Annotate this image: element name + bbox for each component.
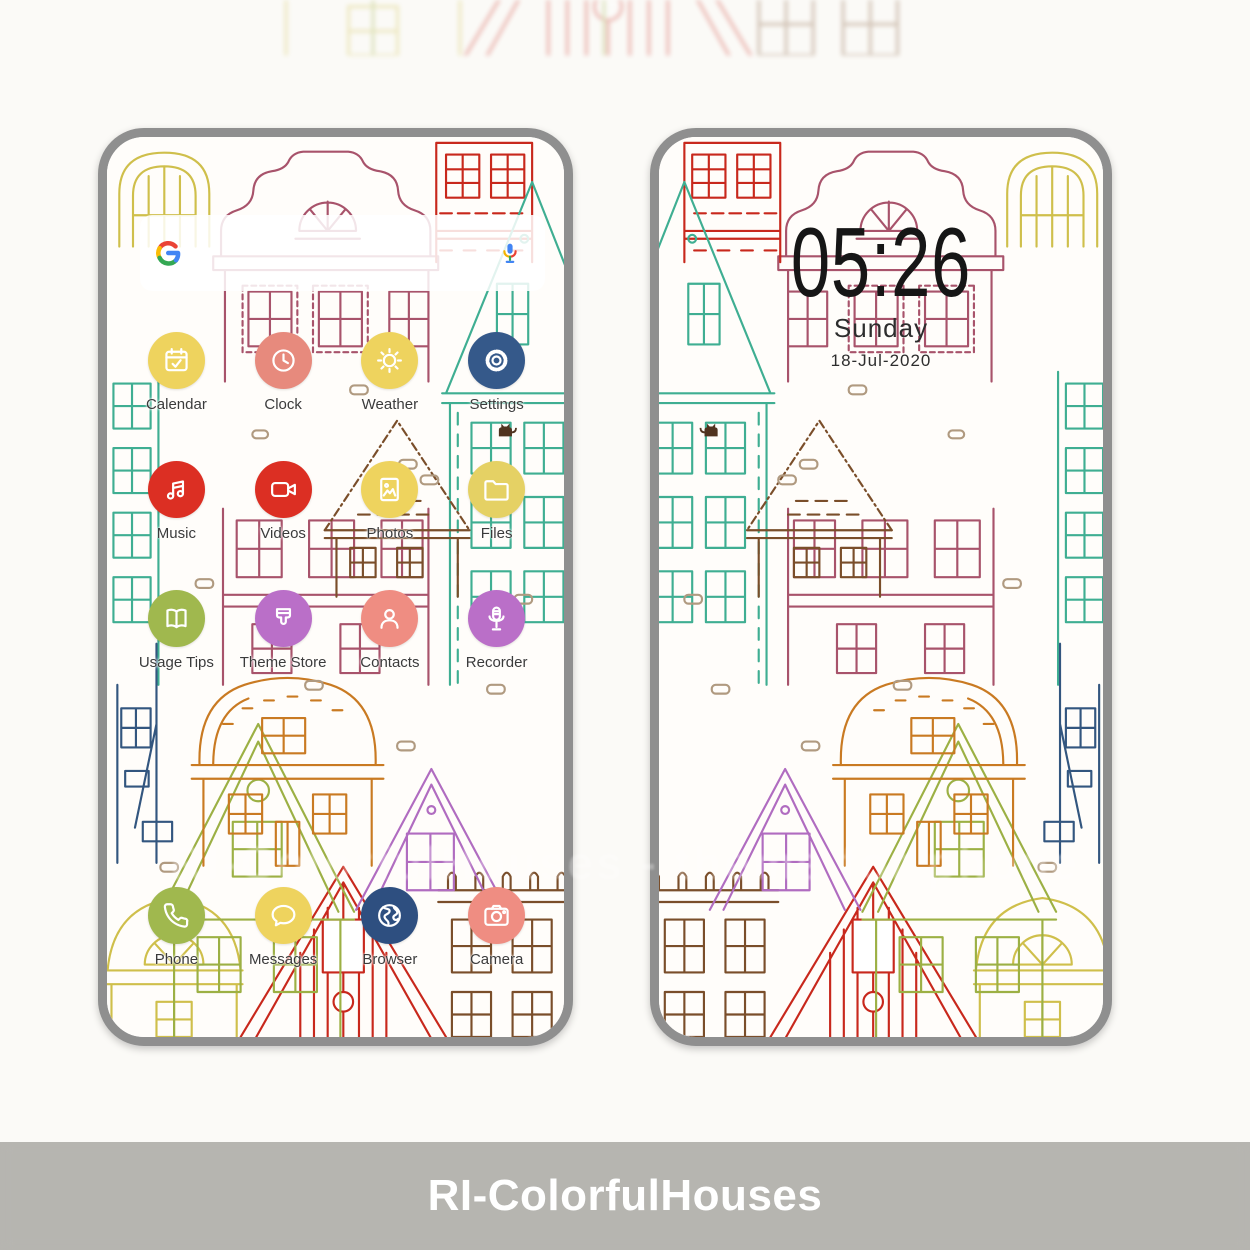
google-g-icon — [153, 238, 183, 268]
lock-time: 05:26 — [721, 221, 1041, 303]
app-usage-tips[interactable]: Usage Tips — [123, 590, 230, 671]
app-calendar[interactable]: Calendar — [123, 332, 230, 413]
app-recorder[interactable]: Recorder — [443, 590, 550, 671]
lock-date: 18-Jul-2020 — [659, 351, 1103, 371]
app-phone[interactable]: Phone — [123, 887, 230, 968]
lock-day: Sunday — [659, 313, 1103, 344]
app-clock[interactable]: Clock — [230, 332, 337, 413]
recorder-icon — [468, 590, 525, 647]
app-browser[interactable]: Browser — [337, 887, 444, 968]
photos-icon — [361, 461, 418, 518]
app-settings[interactable]: Settings — [443, 332, 550, 413]
app-label: Files — [481, 525, 513, 542]
contacts-icon — [361, 590, 418, 647]
messages-icon — [255, 887, 312, 944]
app-label: Browser — [362, 951, 417, 968]
left-phone-mockup: CalendarClockWeatherSettingsMusicVideosP… — [98, 128, 573, 1046]
app-label: Music — [157, 525, 196, 542]
app-label: Usage Tips — [139, 654, 214, 671]
settings-icon — [468, 332, 525, 389]
app-label: Contacts — [360, 654, 419, 671]
google-mic-icon[interactable] — [497, 236, 523, 270]
browser-icon — [361, 887, 418, 944]
app-photos[interactable]: Photos — [337, 461, 444, 542]
app-label: Phone — [155, 951, 198, 968]
home-screen: CalendarClockWeatherSettingsMusicVideosP… — [107, 137, 564, 1037]
app-label: Clock — [264, 396, 302, 413]
app-videos[interactable]: Videos — [230, 461, 337, 542]
clock-icon — [255, 332, 312, 389]
app-label: Photos — [367, 525, 414, 542]
app-row-3: Usage TipsTheme StoreContactsRecorder — [107, 590, 564, 671]
banner-title: RI-ColorfulHouses — [428, 1171, 823, 1221]
app-camera[interactable]: Camera — [443, 887, 550, 968]
phone-icon — [148, 887, 205, 944]
app-label: Settings — [470, 396, 524, 413]
app-theme-store[interactable]: Theme Store — [230, 590, 337, 671]
app-label: Recorder — [466, 654, 528, 671]
app-contacts[interactable]: Contacts — [337, 590, 444, 671]
music-icon — [148, 461, 205, 518]
theme-store-icon — [255, 590, 312, 647]
app-label: Camera — [470, 951, 523, 968]
camera-icon — [468, 887, 525, 944]
theme-preview-page: CalendarClockWeatherSettingsMusicVideosP… — [0, 0, 1250, 1250]
app-label: Messages — [249, 951, 317, 968]
app-messages[interactable]: Messages — [230, 887, 337, 968]
google-search-widget[interactable] — [140, 215, 545, 291]
app-label: Weather — [362, 396, 418, 413]
app-row-2: MusicVideosPhotosFiles — [107, 461, 564, 542]
app-label: Theme Store — [240, 654, 327, 671]
weather-icon — [361, 332, 418, 389]
dock-row: PhoneMessagesBrowserCamera — [107, 887, 564, 968]
title-banner: RI-ColorfulHouses — [0, 1142, 1250, 1250]
app-weather[interactable]: Weather — [337, 332, 444, 413]
app-row-1: CalendarClockWeatherSettings — [107, 332, 564, 413]
app-label: Calendar — [146, 396, 207, 413]
videos-icon — [255, 461, 312, 518]
lock-screen-clock: 05:26 Sunday 18-Jul-2020 — [659, 221, 1103, 371]
lock-screen: 05:26 Sunday 18-Jul-2020 — [659, 137, 1103, 1037]
usage-tips-icon — [148, 590, 205, 647]
app-music[interactable]: Music — [123, 461, 230, 542]
app-label: Videos — [260, 525, 306, 542]
calendar-icon — [148, 332, 205, 389]
right-phone-mockup: 05:26 Sunday 18-Jul-2020 — [650, 128, 1112, 1046]
files-icon — [468, 461, 525, 518]
app-files[interactable]: Files — [443, 461, 550, 542]
